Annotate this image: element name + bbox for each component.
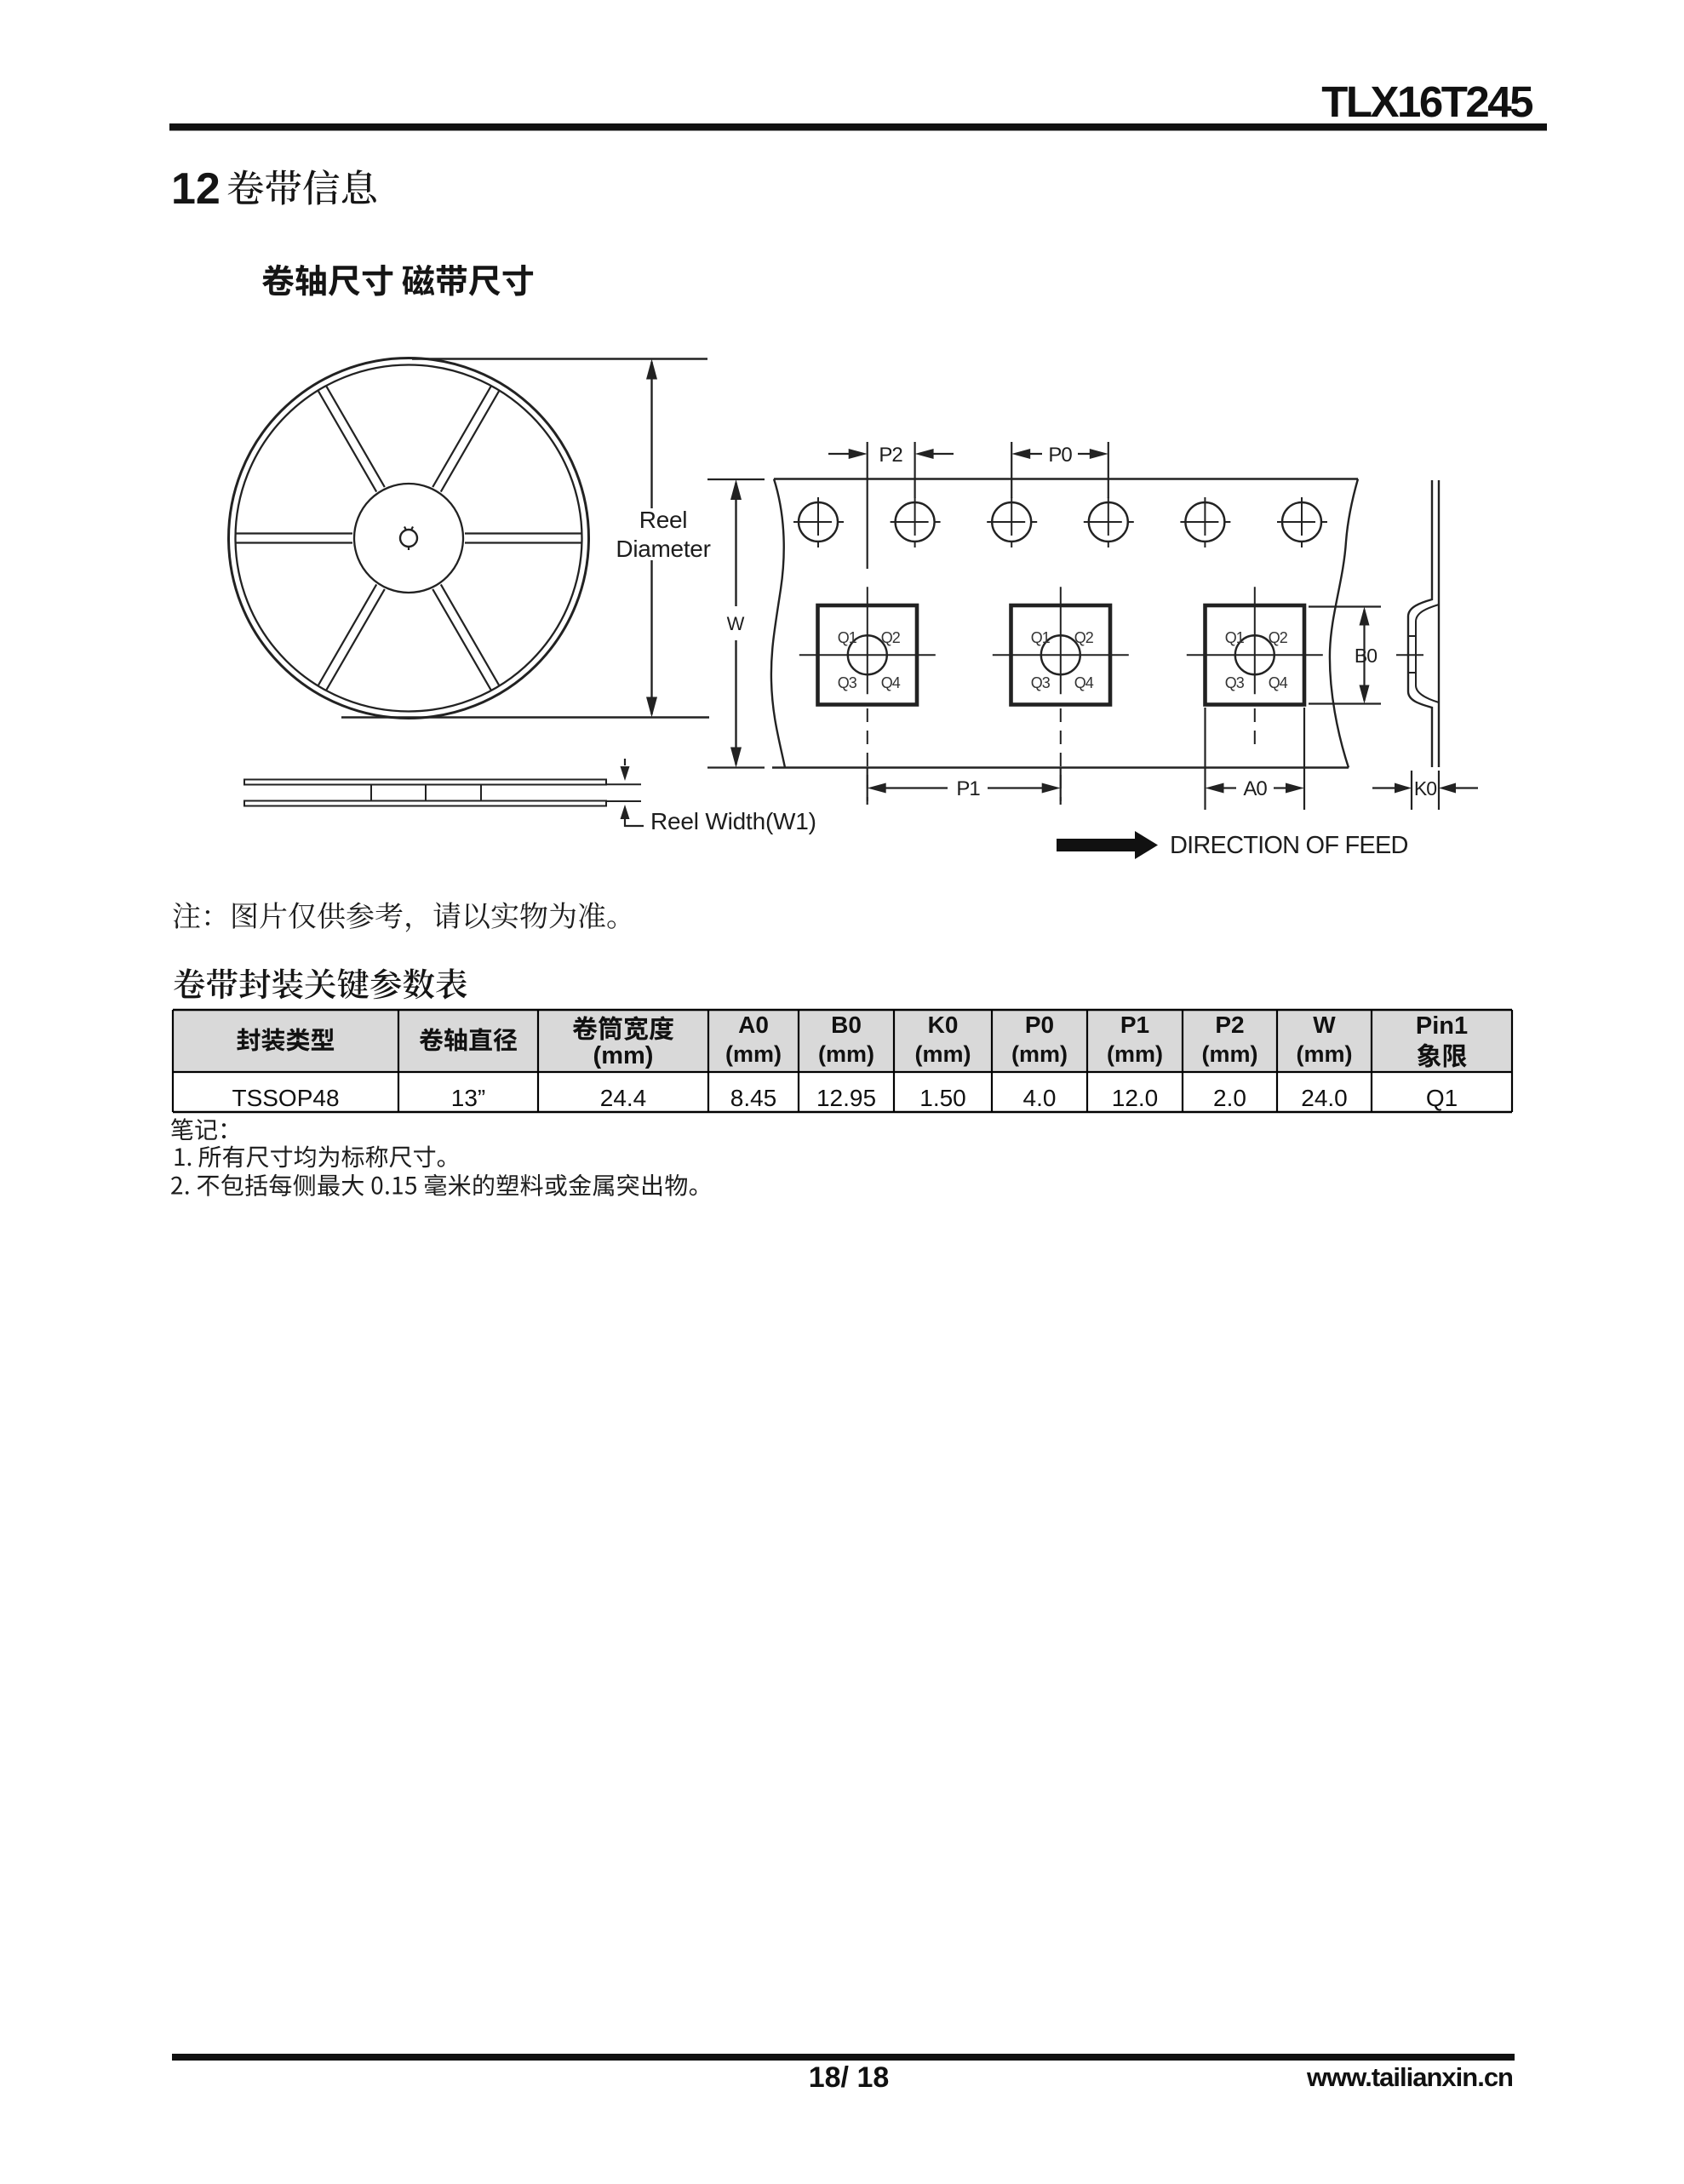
svg-text:Q3: Q3 bbox=[1225, 674, 1245, 691]
svg-text:P1: P1 bbox=[1120, 1012, 1149, 1038]
svg-text:(mm): (mm) bbox=[593, 1042, 654, 1069]
svg-text:8.45: 8.45 bbox=[730, 1085, 777, 1111]
svg-text:(mm): (mm) bbox=[1297, 1041, 1353, 1067]
svg-text:Q1: Q1 bbox=[1031, 629, 1051, 646]
svg-text:Q4: Q4 bbox=[881, 674, 901, 691]
svg-text:P2: P2 bbox=[1215, 1012, 1244, 1038]
svg-text:Q2: Q2 bbox=[1074, 629, 1094, 646]
svg-text:W: W bbox=[1313, 1012, 1336, 1038]
svg-text:B0: B0 bbox=[831, 1012, 862, 1038]
svg-text:Q2: Q2 bbox=[881, 629, 901, 646]
svg-text:P0: P0 bbox=[1048, 444, 1072, 467]
svg-text:(mm): (mm) bbox=[915, 1041, 971, 1067]
svg-text:1.50: 1.50 bbox=[919, 1085, 966, 1111]
svg-text:B0: B0 bbox=[1355, 645, 1377, 667]
svg-text:K0: K0 bbox=[1414, 777, 1436, 800]
svg-text:24.4: 24.4 bbox=[600, 1085, 647, 1111]
svg-text:24.0: 24.0 bbox=[1301, 1085, 1348, 1111]
svg-text:K0: K0 bbox=[928, 1012, 959, 1038]
svg-text:12.0: 12.0 bbox=[1112, 1085, 1159, 1111]
svg-text:(mm): (mm) bbox=[1202, 1041, 1258, 1067]
svg-text:Q4: Q4 bbox=[1074, 674, 1094, 691]
svg-text:12: 12 bbox=[171, 164, 221, 214]
svg-text:(mm): (mm) bbox=[1011, 1041, 1068, 1067]
svg-text:(mm): (mm) bbox=[725, 1041, 782, 1067]
svg-text:Pin1: Pin1 bbox=[1416, 1012, 1468, 1040]
svg-text:2.0: 2.0 bbox=[1213, 1085, 1246, 1111]
svg-text:Reel Width(W1): Reel Width(W1) bbox=[650, 808, 816, 834]
svg-text:4.0: 4.0 bbox=[1023, 1085, 1057, 1111]
svg-text:(mm): (mm) bbox=[1107, 1041, 1163, 1067]
svg-text:Q3: Q3 bbox=[838, 674, 857, 691]
svg-text:Q1: Q1 bbox=[1225, 629, 1245, 646]
svg-text:Diameter: Diameter bbox=[616, 536, 710, 562]
svg-text:P2: P2 bbox=[879, 444, 902, 467]
svg-text:Q2: Q2 bbox=[1269, 629, 1288, 646]
svg-text:Q3: Q3 bbox=[1031, 674, 1051, 691]
svg-text:TLX16T245: TLX16T245 bbox=[1321, 77, 1532, 126]
svg-text:18/ 18: 18/ 18 bbox=[809, 2061, 890, 2094]
svg-text:Reel: Reel bbox=[639, 507, 687, 533]
svg-text:Q1: Q1 bbox=[838, 629, 857, 646]
svg-text:TSSOP48: TSSOP48 bbox=[232, 1085, 339, 1111]
svg-text:12.95: 12.95 bbox=[816, 1085, 876, 1111]
svg-text:13”: 13” bbox=[451, 1085, 485, 1111]
svg-text:A0: A0 bbox=[1243, 777, 1267, 800]
svg-text:(mm): (mm) bbox=[818, 1041, 874, 1067]
svg-text:P1: P1 bbox=[956, 777, 980, 800]
svg-text:www.tailianxin.cn: www.tailianxin.cn bbox=[1306, 2062, 1513, 2092]
svg-text:A0: A0 bbox=[738, 1012, 769, 1038]
svg-text:W: W bbox=[727, 613, 745, 634]
svg-text:DIRECTION OF FEED: DIRECTION OF FEED bbox=[1170, 832, 1408, 859]
svg-text:Q4: Q4 bbox=[1269, 674, 1288, 691]
svg-text:P0: P0 bbox=[1025, 1012, 1054, 1038]
svg-text:Q1: Q1 bbox=[1426, 1085, 1458, 1111]
